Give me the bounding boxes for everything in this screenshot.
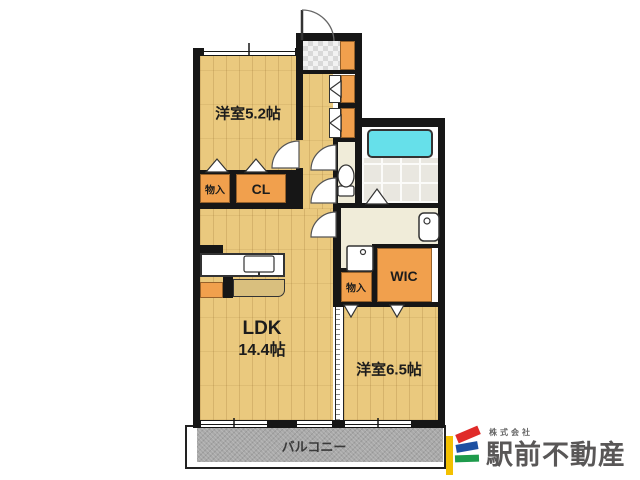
logo-company-name: 駅前不動産: [486, 433, 626, 472]
wall-kitchen-stub: [223, 277, 233, 298]
label-closet-cl: CL: [252, 181, 271, 197]
wall-washroom-top: [333, 203, 438, 208]
window-ldk-balcony-2: [296, 421, 333, 427]
label-storage-upper: 物入: [205, 182, 225, 197]
wall-closet-bottom: [193, 203, 303, 209]
wall-wic-left: [372, 244, 377, 302]
hall-closet-door-2: [329, 108, 341, 138]
hall-closet-door-1: [329, 75, 341, 103]
wall-genkan-bottom: [300, 70, 355, 74]
wall-closet-divider: [230, 170, 236, 207]
wall-storage-lower-top: [336, 268, 372, 272]
entrance-tile-floor: [303, 41, 340, 70]
wall-hall-ldk: [333, 208, 341, 237]
fridge-space: [200, 282, 223, 298]
label-storage-lower: 物入: [346, 280, 366, 295]
wall-wic-top: [372, 244, 438, 248]
wall-bed65-top: [333, 302, 445, 307]
bathroom-tile-floor: [362, 158, 438, 203]
washroom-floor: [338, 208, 438, 248]
room-ldk-floor: [200, 209, 333, 420]
bathroom-upper-floor: [362, 127, 438, 158]
wall-toilet-left: [333, 140, 338, 205]
hall-closet-2: [341, 108, 355, 138]
wall-toilet-bath: [355, 127, 362, 205]
label-wic: WIC: [390, 268, 417, 284]
label-ldk-size: 14.4帖: [238, 336, 285, 360]
wall-counter-left: [193, 245, 223, 253]
wall-entrance-top: [296, 33, 362, 41]
wall-left: [193, 48, 200, 428]
toilet-floor: [338, 142, 355, 203]
wall-bath-top: [355, 118, 445, 127]
window-bed52-top: [203, 48, 296, 55]
label-bedroom-65: 洋室6.5帖: [356, 359, 422, 380]
wall-bed52-hall-upper: [296, 41, 303, 140]
hall-closet-1: [341, 75, 355, 103]
window-bed65-balcony: [344, 421, 412, 427]
wall-entrance-right: [355, 41, 362, 127]
sliding-door-ldk-bed65: [335, 307, 344, 420]
window-ldk-balcony-1: [200, 421, 268, 427]
wall-ldk-wash-divider: [333, 237, 341, 307]
label-bedroom-52: 洋室5.2帖: [215, 103, 281, 124]
wall-right: [438, 127, 445, 428]
logo-yellow-bar: [446, 436, 453, 475]
shoe-cabinet: [340, 41, 355, 70]
floorplan-canvas: 洋室5.2帖 物入 CL LDK 14.4帖 物入 WIC 洋室6.5帖 バルコ…: [0, 0, 640, 480]
label-balcony: バルコニー: [282, 437, 347, 456]
logo-green-stripe: [455, 455, 479, 463]
kitchen-ledge: [233, 279, 285, 297]
kitchen-counter: [200, 253, 285, 277]
